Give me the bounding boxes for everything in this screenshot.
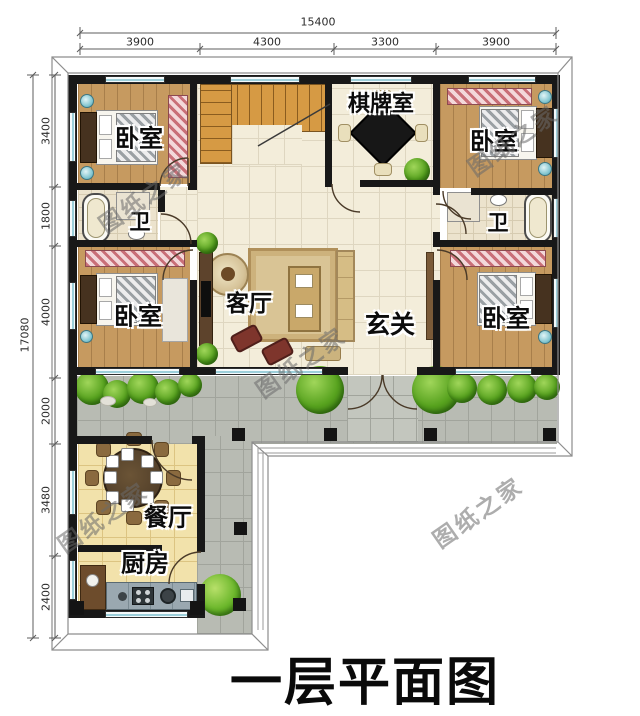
window xyxy=(69,200,76,237)
wall-chess-bottom-b xyxy=(360,180,440,187)
nightstand xyxy=(80,166,94,180)
kettle-icon xyxy=(118,592,127,601)
column xyxy=(70,601,84,615)
plate xyxy=(106,455,119,468)
plate xyxy=(150,471,163,484)
dining-chair xyxy=(166,470,181,486)
window xyxy=(350,76,412,83)
bed-headboard xyxy=(80,275,97,324)
window xyxy=(230,76,300,83)
window xyxy=(69,282,76,330)
column xyxy=(232,428,245,441)
entry-path xyxy=(347,376,418,442)
wall-wing-right-a xyxy=(197,436,205,552)
dim-left-seg-3: 4000 xyxy=(40,298,53,326)
wall-br2-bottom xyxy=(471,188,560,195)
chess-chair xyxy=(415,124,428,142)
label-bedroom-mid-right: 卧室 xyxy=(482,299,530,334)
window xyxy=(553,278,559,328)
chess-chair xyxy=(374,163,392,176)
column xyxy=(234,522,247,535)
bathtub-inner xyxy=(529,197,547,238)
stove xyxy=(132,587,154,605)
dim-top-total: 15400 xyxy=(301,16,336,29)
wall-bath2-left xyxy=(433,232,440,240)
toilet xyxy=(490,194,507,206)
plate xyxy=(104,471,117,484)
wardrobe xyxy=(447,88,532,105)
label-living-room: 客厅 xyxy=(226,284,272,318)
window xyxy=(69,560,76,600)
dim-left-seg-4: 2000 xyxy=(40,397,53,425)
hedge xyxy=(447,373,477,403)
label-dining-room: 餐厅 xyxy=(144,498,192,533)
label-foyer: 玄关 xyxy=(365,305,415,341)
dim-top-seg-4: 3900 xyxy=(482,36,510,49)
label-bathroom-right: 卫 xyxy=(488,207,509,237)
plate xyxy=(121,448,134,461)
watermark: 图纸之家 xyxy=(425,467,530,555)
bed-headboard xyxy=(535,274,552,324)
garden-stone xyxy=(100,396,116,406)
pillow xyxy=(99,301,112,320)
dim-left-seg-2: 1800 xyxy=(40,202,53,230)
burner xyxy=(145,590,150,595)
burner xyxy=(136,598,141,603)
window xyxy=(69,112,76,162)
nightstand xyxy=(80,94,94,108)
hedge xyxy=(477,375,507,405)
label-bedroom-top-left: 卧室 xyxy=(115,119,163,154)
dim-left-total: 17080 xyxy=(19,318,32,353)
plate xyxy=(141,455,154,468)
tv-icon xyxy=(201,281,211,317)
wall-wing-top-a xyxy=(68,436,152,444)
dim-top-seg-2: 4300 xyxy=(253,36,281,49)
shower xyxy=(447,192,480,222)
pillow xyxy=(520,277,533,296)
hedge xyxy=(534,374,560,400)
stair-left-flight xyxy=(200,84,232,164)
kitchen-sink-small xyxy=(86,574,99,587)
table-item xyxy=(295,274,313,288)
dim-top-seg-1: 3900 xyxy=(126,36,154,49)
side-table-item xyxy=(221,267,235,281)
pillow xyxy=(99,115,112,135)
potted-plant xyxy=(196,232,218,254)
window xyxy=(105,611,188,618)
window xyxy=(468,76,536,83)
window xyxy=(95,368,180,375)
table-item xyxy=(295,304,313,318)
wall-entry-pier xyxy=(333,367,348,375)
dim-left-seg-6: 2400 xyxy=(40,583,53,611)
label-chess-room: 棋牌室 xyxy=(348,86,414,118)
desk xyxy=(162,278,188,342)
label-kitchen: 厨房 xyxy=(121,544,169,579)
chess-chair xyxy=(338,124,351,142)
pillow xyxy=(99,139,112,159)
dining-chair xyxy=(96,442,111,457)
burner xyxy=(145,598,150,603)
burner xyxy=(136,590,141,595)
floor-plan-page: 15400 3900 4300 3300 3900 17080 3400 180… xyxy=(0,0,640,716)
window xyxy=(69,470,76,515)
wall-br2-left xyxy=(433,75,440,195)
nightstand xyxy=(538,162,552,176)
pillow xyxy=(99,278,112,297)
column xyxy=(324,428,337,441)
garden-stone xyxy=(143,398,157,407)
wardrobe xyxy=(450,250,546,267)
column xyxy=(424,428,437,441)
potted-plant xyxy=(196,343,218,365)
label-bedroom-mid-left: 卧室 xyxy=(114,297,162,332)
window xyxy=(105,76,165,83)
kitchen-sink xyxy=(160,588,176,604)
plan-title: 一层平面图 xyxy=(230,640,500,715)
nightstand xyxy=(80,330,93,343)
dim-top-seg-3: 3300 xyxy=(371,36,399,49)
wall-stair-chess xyxy=(325,75,332,187)
wardrobe xyxy=(85,250,185,267)
window xyxy=(553,198,559,238)
nightstand xyxy=(538,330,552,344)
wall-br4-top xyxy=(433,240,560,247)
wall-br1-right xyxy=(190,75,197,190)
wall-br3-right xyxy=(190,280,197,370)
hedge xyxy=(507,373,537,403)
dining-chair xyxy=(85,470,99,486)
stair-landing xyxy=(232,125,302,165)
column xyxy=(190,601,204,615)
column xyxy=(543,428,556,441)
wall-chess-bottom-a xyxy=(325,180,332,187)
window xyxy=(455,368,532,375)
wall-br3-top xyxy=(68,240,197,247)
column xyxy=(233,598,246,611)
bed-headboard xyxy=(80,112,97,163)
dining-chair xyxy=(154,442,169,457)
dim-left-seg-1: 3400 xyxy=(40,117,53,145)
dim-left-seg-5: 3480 xyxy=(40,486,53,514)
bush xyxy=(178,373,202,397)
wall-br4-left xyxy=(433,280,440,370)
